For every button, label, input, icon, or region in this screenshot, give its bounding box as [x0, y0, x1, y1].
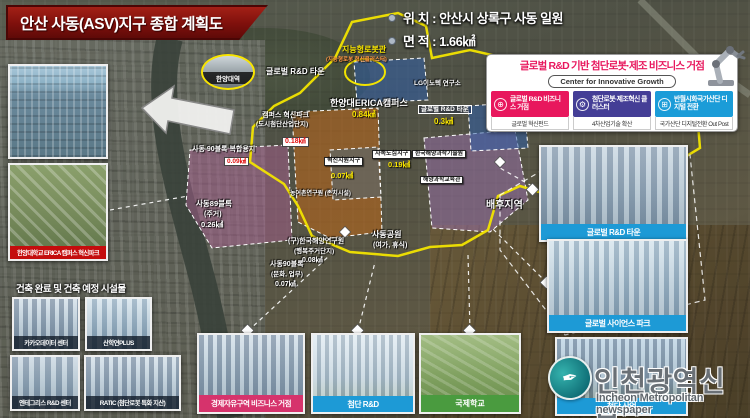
thumb-caption: 카카오데이터 센터	[14, 336, 78, 349]
card-subtext: 국가산단 디지털전환 Out Post	[655, 117, 733, 130]
thumb-entegris-rnd-center: 엔테그리스 R&D 센터	[10, 355, 80, 411]
thumb-caption: 산학연PLUS	[87, 336, 150, 349]
map-label-lg-lab: LG이노텍 연구소	[414, 80, 461, 87]
inset-caption: 국제학교	[421, 395, 519, 412]
map-label-sadong-park-sub: (여가, 휴식)	[373, 242, 407, 250]
inset-global-science-park: 글로벌 사이언스 파크	[547, 239, 688, 333]
inset-international-school: 국제학교	[419, 333, 521, 414]
map-label-innovation-park-sub: (도시첨단산업단지)	[256, 121, 308, 128]
digital-icon: ⊞	[658, 98, 671, 111]
map-label-campus: 한양대ERICA캠퍼스	[330, 99, 408, 109]
inset-free-economic-zone: 경제자유구역 비즈니스 거점	[197, 333, 305, 414]
card-subtext: 글로벌 혁신펀드	[491, 117, 569, 130]
station-label: 한양대역	[203, 72, 253, 84]
card-title: 반월시화국가산단 디지털 전환	[674, 96, 730, 112]
inset-erica-innovation-park: 한양대학교 ERICA 캠퍼스 혁신파크	[8, 163, 108, 261]
map-label-campus-area: 0.84㎢	[352, 111, 376, 120]
map-label-block89-sub: (주거)	[204, 211, 222, 219]
area-text: 면 적 : 1.66㎢	[403, 31, 475, 50]
map-label-kordi-area: 0.08㎢	[302, 257, 323, 265]
map-label-hinterland: 배후지역	[486, 200, 523, 211]
card-digital-transform-header: ⊞ 반월시화국가산단 디지털 전환	[655, 91, 733, 117]
map-label-support-zone: 혁신지원지구	[324, 157, 363, 166]
map-label-kiost: 한국해양과학기술원	[412, 150, 466, 158]
card-robot-cluster-header: ⚙ 첨단로봇·제조혁신 클러스터	[573, 91, 651, 117]
map-label-robot-hall: 지능형로봇관	[342, 46, 386, 55]
map-label-block-mixed-area: 0.09㎢	[224, 157, 249, 166]
card-global-rnd-header: ⊕ 글로벌 R&D 비즈니스 거점	[491, 91, 569, 117]
poster: 안산 사동(ASV)지구 종합 계획도 위 치 : 안산시 상록구 사동 일원 …	[0, 0, 750, 418]
map-label-innovation-park-area: 0.18㎢	[282, 137, 309, 147]
thumb-sanhakyeon-plus: 산학연PLUS	[85, 297, 152, 351]
page-title-text: 안산 사동(ASV)지구 종합 계획도	[20, 12, 222, 34]
map-label-rnd-town-top: 글로벌 R&D 타운	[266, 68, 325, 77]
map-label-block90-sub: (문화, 업무)	[271, 271, 303, 278]
map-label-block90-area: 0.07㎢	[275, 281, 296, 289]
map-label-ocean-edu: 해양과학교육관	[420, 176, 463, 184]
inset-caption: 글로벌 사이언스 파크	[549, 315, 686, 331]
card-digital-transform: ⊞ 반월시화국가산단 디지털 전환 국가산단 디지털전환 Out Post	[655, 91, 733, 130]
map-label-kordi: (구)한국해양연구원	[288, 238, 344, 246]
map-label-rnd-town-right-area: 0.3㎢	[434, 118, 453, 127]
map-label-kordi-sub: (행복주거단지)	[294, 248, 334, 255]
map-label-innovation-park: 캠퍼스 혁신파크	[262, 112, 309, 120]
map-label-block89-area: 0.26㎢	[201, 221, 223, 229]
map-label-block89: 사동89블록	[196, 200, 232, 208]
pen-nib-icon: ✒	[560, 365, 580, 391]
card-title: 첨단로봇·제조혁신 클러스터	[592, 96, 648, 112]
inset-advanced-rnd: 첨단 R&D	[311, 333, 415, 414]
map-label-block-mixed: 사동 90블록 복합용지	[192, 146, 255, 154]
bullet-icon	[388, 14, 396, 22]
page-title: 안산 사동(ASV)지구 종합 계획도	[6, 5, 268, 40]
map-label-robot-hall-sub: (지능형로봇 혁신클러스터)	[326, 57, 387, 63]
concept-cards: ⊕ 글로벌 R&D 비즈니스 거점 글로벌 혁신펀드 ⚙ 첨단로봇·제조혁신 클…	[491, 91, 733, 130]
card-robot-cluster: ⚙ 첨단로봇·제조혁신 클러스터 4차산업기술 확산	[573, 91, 651, 130]
thumb-kakao-data-center: 카카오데이터 센터	[12, 297, 80, 351]
map-label-block90: 사동90블록	[270, 261, 304, 269]
card-title: 글로벌 R&D 비즈니스 거점	[510, 96, 566, 112]
robot-icon: ⚙	[576, 98, 589, 111]
inset-caption: 첨단 R&D	[313, 396, 413, 412]
direction-arrow	[142, 86, 234, 134]
globe-icon: ⊕	[494, 98, 507, 111]
bullet-icon	[388, 37, 396, 45]
location-row: 위 치 : 안산시 상록구 사동 일원	[388, 8, 563, 27]
card-subtext: 4차산업기술 확산	[573, 117, 651, 130]
inset-caption: 글로벌 R&D 타운	[541, 224, 686, 240]
map-label-support-zone-area: 0.07㎢	[331, 172, 353, 180]
map-label-sadong-park: 사동공원	[372, 231, 401, 240]
robot-arm-illustration	[694, 40, 746, 88]
thumb-ratic: RATIC (첨단로봇 특화 지산)	[84, 355, 181, 411]
station-marker: 한양대역	[201, 54, 255, 90]
location-text: 위 치 : 안산시 상록구 사동 일원	[403, 8, 563, 27]
thumb-caption: RATIC (첨단로봇 특화 지산)	[86, 396, 179, 409]
inset-global-rnd-town: 글로벌 R&D 타운	[539, 145, 688, 242]
thumb-caption: 엔테그리스 R&D 센터	[12, 396, 78, 409]
concept-subtitle: Center for Innovative Growth	[548, 75, 676, 88]
map-label-selfcity: 자족도심지구	[372, 150, 411, 159]
area-row: 면 적 : 1.66㎢	[388, 31, 563, 50]
card-global-rnd: ⊕ 글로벌 R&D 비즈니스 거점 글로벌 혁신펀드	[491, 91, 569, 130]
inset-caption: 한양대학교 ERICA 캠퍼스 혁신파크	[10, 246, 106, 259]
inset-industrial-complex	[8, 64, 108, 159]
meta-info: 위 치 : 안산시 상록구 사동 일원 면 적 : 1.66㎢	[388, 8, 563, 54]
map-label-rnd-town-right: 글로벌 R&D 타운	[418, 105, 472, 114]
inset-caption: 경제자유구역 비즈니스 거점	[199, 395, 303, 412]
watermark-english: Incheon Metropolitan newspaper	[596, 392, 750, 416]
section-title-buildings: 건축 완료 및 건축 예정 시설물	[16, 281, 126, 295]
map-label-selfcity-area: 0.19㎢	[388, 161, 410, 169]
map-label-rural-lab: 농어촌연구원 (존치시설)	[290, 191, 351, 198]
